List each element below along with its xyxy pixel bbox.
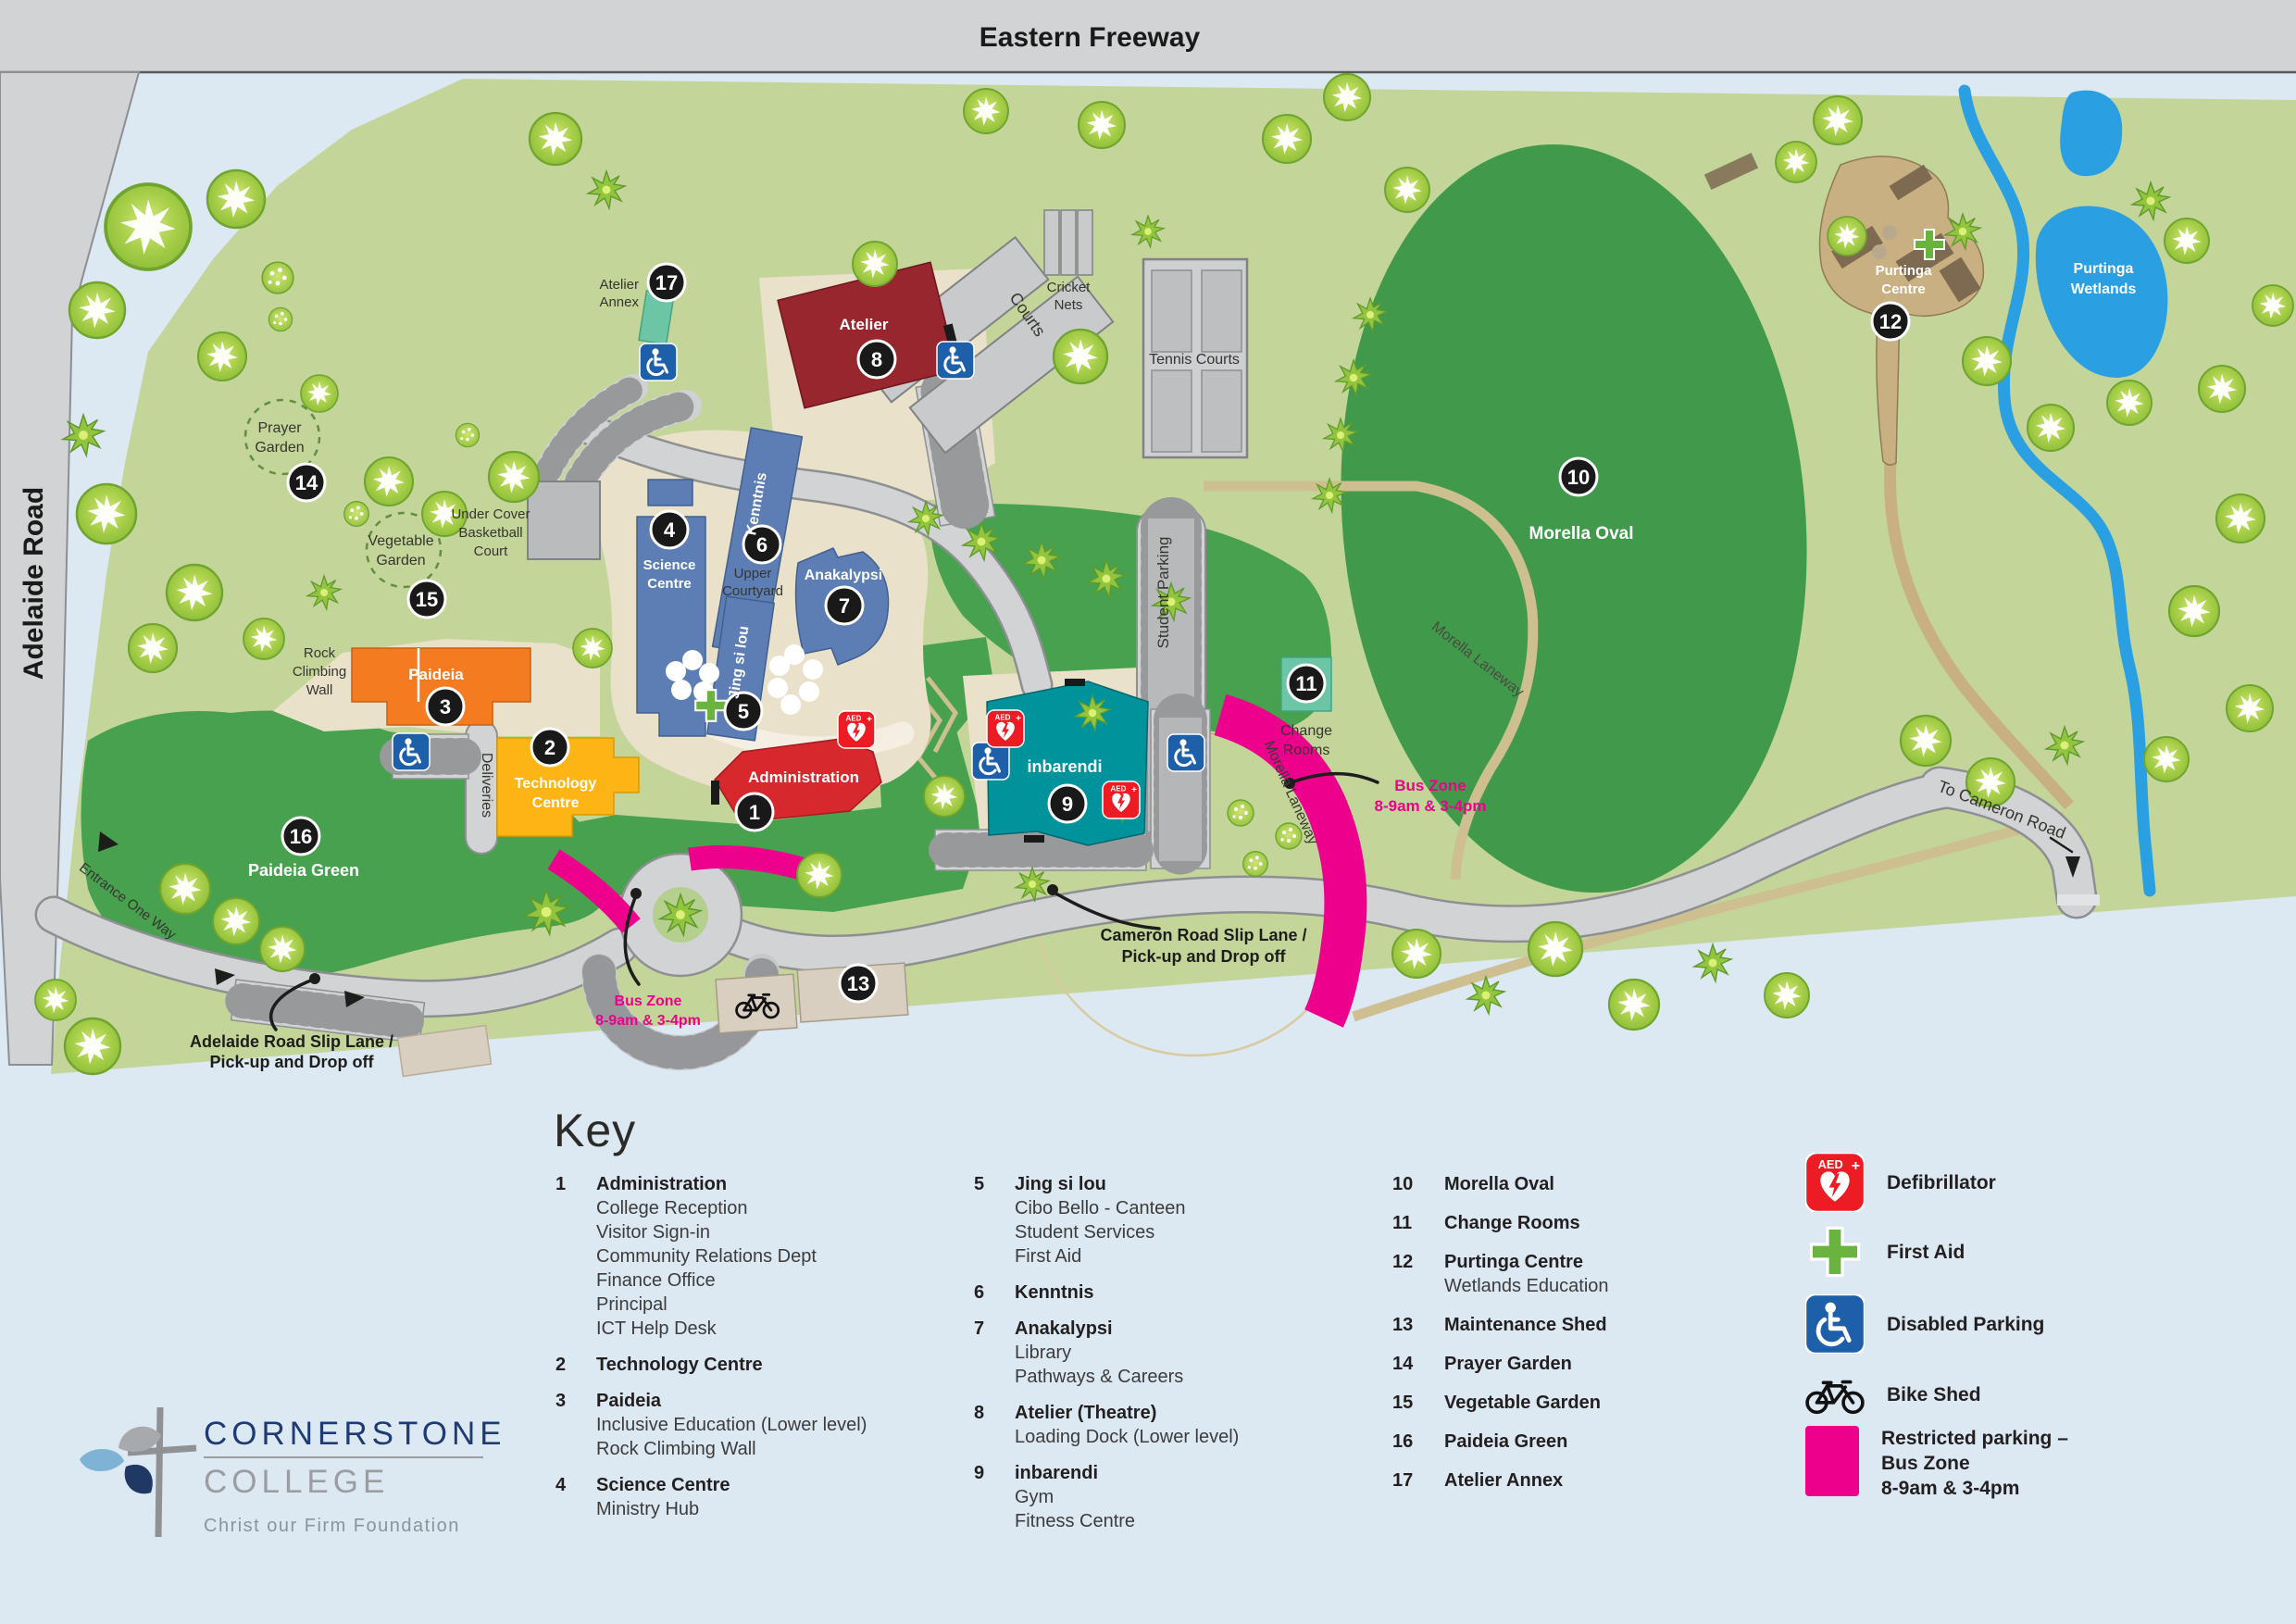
- logo-name-line2: COLLEGE: [204, 1464, 389, 1500]
- key-entry-17: 17 Atelier Annex: [1392, 1468, 1763, 1493]
- marker-14: 14: [288, 464, 325, 501]
- key-entry-16: 16 Paideia Green: [1392, 1430, 1763, 1454]
- disabled-parking-icon: [972, 743, 1009, 780]
- tennis-courts-label: Tennis Courts: [1149, 352, 1240, 368]
- svg-text:3: 3: [440, 695, 451, 718]
- defibrillator-icon: [1805, 1153, 1865, 1212]
- svg-text:11: 11: [1295, 672, 1316, 695]
- disabled-parking-icon: [1805, 1294, 1865, 1354]
- marker-1: 1: [736, 793, 773, 831]
- key-column-2: 5 Jing si lou Cibo Bello - Canteen Stude…: [974, 1172, 1372, 1545]
- defibrillator-icon: [838, 711, 875, 748]
- key-entry-14: 14 Prayer Garden: [1392, 1352, 1763, 1376]
- key-entry-4: 4 Science Centre Ministry Hub: [555, 1473, 954, 1521]
- svg-text:15: 15: [416, 588, 438, 611]
- marker-12: 12: [1872, 303, 1909, 340]
- svg-text:7: 7: [839, 594, 850, 618]
- key-heading: Key: [554, 1104, 636, 1157]
- key-entry-2: 2 Technology Centre: [555, 1353, 954, 1377]
- legend-disabled-parking: Disabled Parking: [1805, 1294, 2044, 1354]
- morella-oval-label: Morella Oval: [1529, 524, 1634, 543]
- marker-13: 13: [840, 965, 877, 1002]
- marker-15: 15: [408, 581, 445, 618]
- legend-first-aid: First Aid: [1805, 1222, 1965, 1281]
- marker-7: 7: [826, 587, 863, 624]
- disabled-parking-icon: [393, 733, 430, 770]
- key-entry-8: 8 Atelier (Theatre) Loading Dock (Lower …: [974, 1401, 1372, 1449]
- marker-17: 17: [648, 264, 685, 301]
- bike-shed: [716, 974, 797, 1033]
- marker-3: 3: [427, 688, 464, 725]
- svg-text:4: 4: [664, 518, 676, 542]
- key-entry-7: 7 Anakalypsi Library Pathways & Careers: [974, 1317, 1372, 1389]
- inbarendi-label: inbarendi: [1027, 757, 1102, 776]
- key-entry-9: 9 inbarendi Gym Fitness Centre: [974, 1461, 1372, 1533]
- paideia-label: Paideia: [408, 666, 464, 683]
- marker-10: 10: [1560, 458, 1597, 495]
- defibrillator-icon: [1103, 781, 1140, 818]
- marker-11: 11: [1288, 665, 1325, 702]
- key-entry-5: 5 Jing si lou Cibo Bello - Canteen Stude…: [974, 1172, 1372, 1268]
- svg-text:8: 8: [871, 348, 882, 371]
- key-entry-6: 6 Kenntnis: [974, 1280, 1372, 1305]
- key-entry-3: 3 Paideia Inclusive Education (Lower lev…: [555, 1389, 954, 1461]
- paideia-green-label: Paideia Green: [248, 861, 359, 880]
- marker-16: 16: [282, 818, 319, 855]
- eastern-freeway-label: Eastern Freeway: [980, 22, 1201, 53]
- svg-text:17: 17: [655, 271, 678, 294]
- svg-text:2: 2: [544, 736, 555, 759]
- disabled-parking-icon: [937, 342, 974, 379]
- student-parking-label: Student Parking: [1154, 537, 1172, 649]
- adelaide-road-label: Adelaide Road: [19, 487, 49, 680]
- svg-text:1: 1: [749, 801, 760, 824]
- logo-tagline: Christ our Firm Foundation: [204, 1516, 460, 1536]
- administration-label: Administration: [748, 768, 859, 786]
- bike-shed-icon: [1805, 1374, 1865, 1416]
- marker-4: 4: [651, 511, 688, 548]
- logo-mark: [80, 1407, 196, 1537]
- svg-text:10: 10: [1567, 466, 1590, 489]
- anakalypsi-label: Anakalypsi: [805, 568, 882, 583]
- marker-2: 2: [531, 729, 568, 766]
- key-entry-1: 1 Administration College Reception Visit…: [555, 1172, 954, 1341]
- svg-text:5: 5: [738, 700, 749, 723]
- key-column-1: 1 Administration College Reception Visit…: [555, 1172, 954, 1533]
- key-entry-11: 11 Change Rooms: [1392, 1211, 1763, 1235]
- marker-8: 8: [858, 341, 895, 378]
- legend-bus-zone: Restricted parking – Bus Zone 8-9am & 3-…: [1805, 1426, 2068, 1501]
- cricket-nets-structure: [1044, 210, 1092, 275]
- logo-leaf-navy: [125, 1465, 153, 1493]
- disabled-parking-icon: [1167, 734, 1204, 771]
- svg-text:14: 14: [295, 471, 318, 494]
- defibrillator-icon: [987, 710, 1024, 747]
- key-column-3: 10 Morella Oval 11 Change Rooms 12 Purti…: [1392, 1172, 1763, 1507]
- key-entry-15: 15 Vegetable Garden: [1392, 1391, 1763, 1415]
- disabled-parking-icon: [640, 344, 677, 381]
- college-logo: CORNERSTONE COLLEGE Christ our Firm Foun…: [65, 1400, 500, 1553]
- key-entry-12: 12 Purtinga Centre Wetlands Education: [1392, 1250, 1763, 1298]
- legend-bike-shed: Bike Shed: [1805, 1374, 1981, 1416]
- campus-map-page: AED +: [0, 0, 2296, 1624]
- atelier-label: Atelier: [840, 316, 889, 333]
- basketball-court-structure: [528, 481, 600, 559]
- key-entry-10: 10 Morella Oval: [1392, 1172, 1763, 1196]
- svg-text:16: 16: [290, 825, 312, 848]
- svg-text:13: 13: [847, 972, 869, 995]
- svg-text:12: 12: [1879, 310, 1902, 333]
- first-aid-icon: [1805, 1222, 1865, 1281]
- marker-9: 9: [1049, 785, 1086, 822]
- logo-name-line1: CORNERSTONE: [204, 1416, 500, 1452]
- deliveries-label: Deliveries: [479, 753, 494, 818]
- svg-text:9: 9: [1062, 793, 1073, 816]
- legend-defibrillator: Defibrillator: [1805, 1153, 1996, 1212]
- logo-leaf-lightblue: [80, 1449, 124, 1471]
- bus-zone-swatch: [1805, 1426, 1859, 1496]
- key-entry-13: 13 Maintenance Shed: [1392, 1313, 1763, 1337]
